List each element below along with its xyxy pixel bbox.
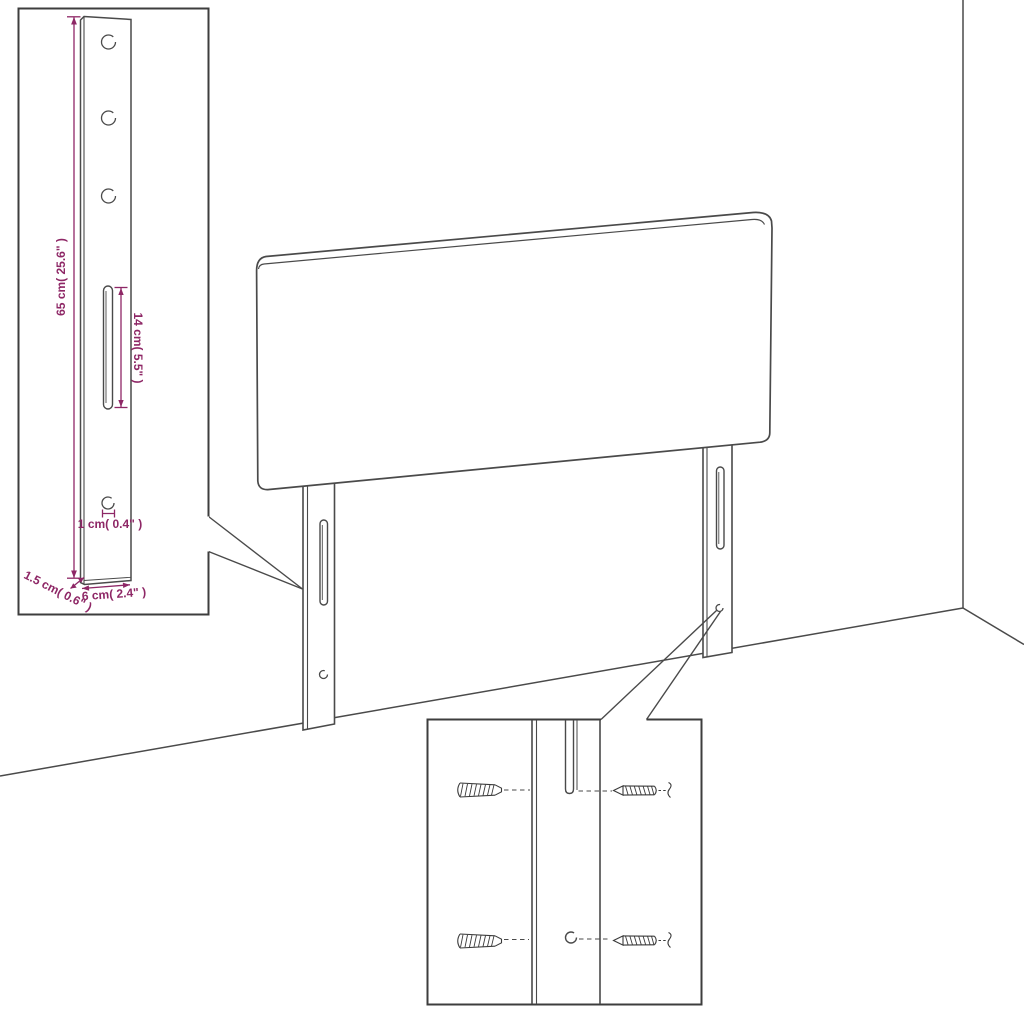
diagram-canvas: 65 cm( 25.6" ) 14 cm( 5.5" ) 1 cm( 0.4" …: [0, 0, 1024, 1024]
headboard-right-leg: [703, 426, 732, 658]
callout-wedge-left: [209, 517, 303, 590]
dimension-label-slot-length: 14 cm( 5.5" ): [131, 312, 145, 383]
headboard-dimension-diagram: [0, 0, 1024, 1024]
headboard-left-leg: [303, 468, 335, 730]
headboard-panel: [257, 212, 772, 489]
dimension-label-hole-diameter: 1 cm( 0.4" ): [78, 517, 142, 531]
hardware-detail-inset: [427, 720, 702, 1006]
dimension-label-leg-height: 65 cm( 25.6" ): [54, 238, 68, 316]
leg-bracket-drawing: [81, 17, 132, 585]
floor-line-right: [963, 608, 1024, 645]
